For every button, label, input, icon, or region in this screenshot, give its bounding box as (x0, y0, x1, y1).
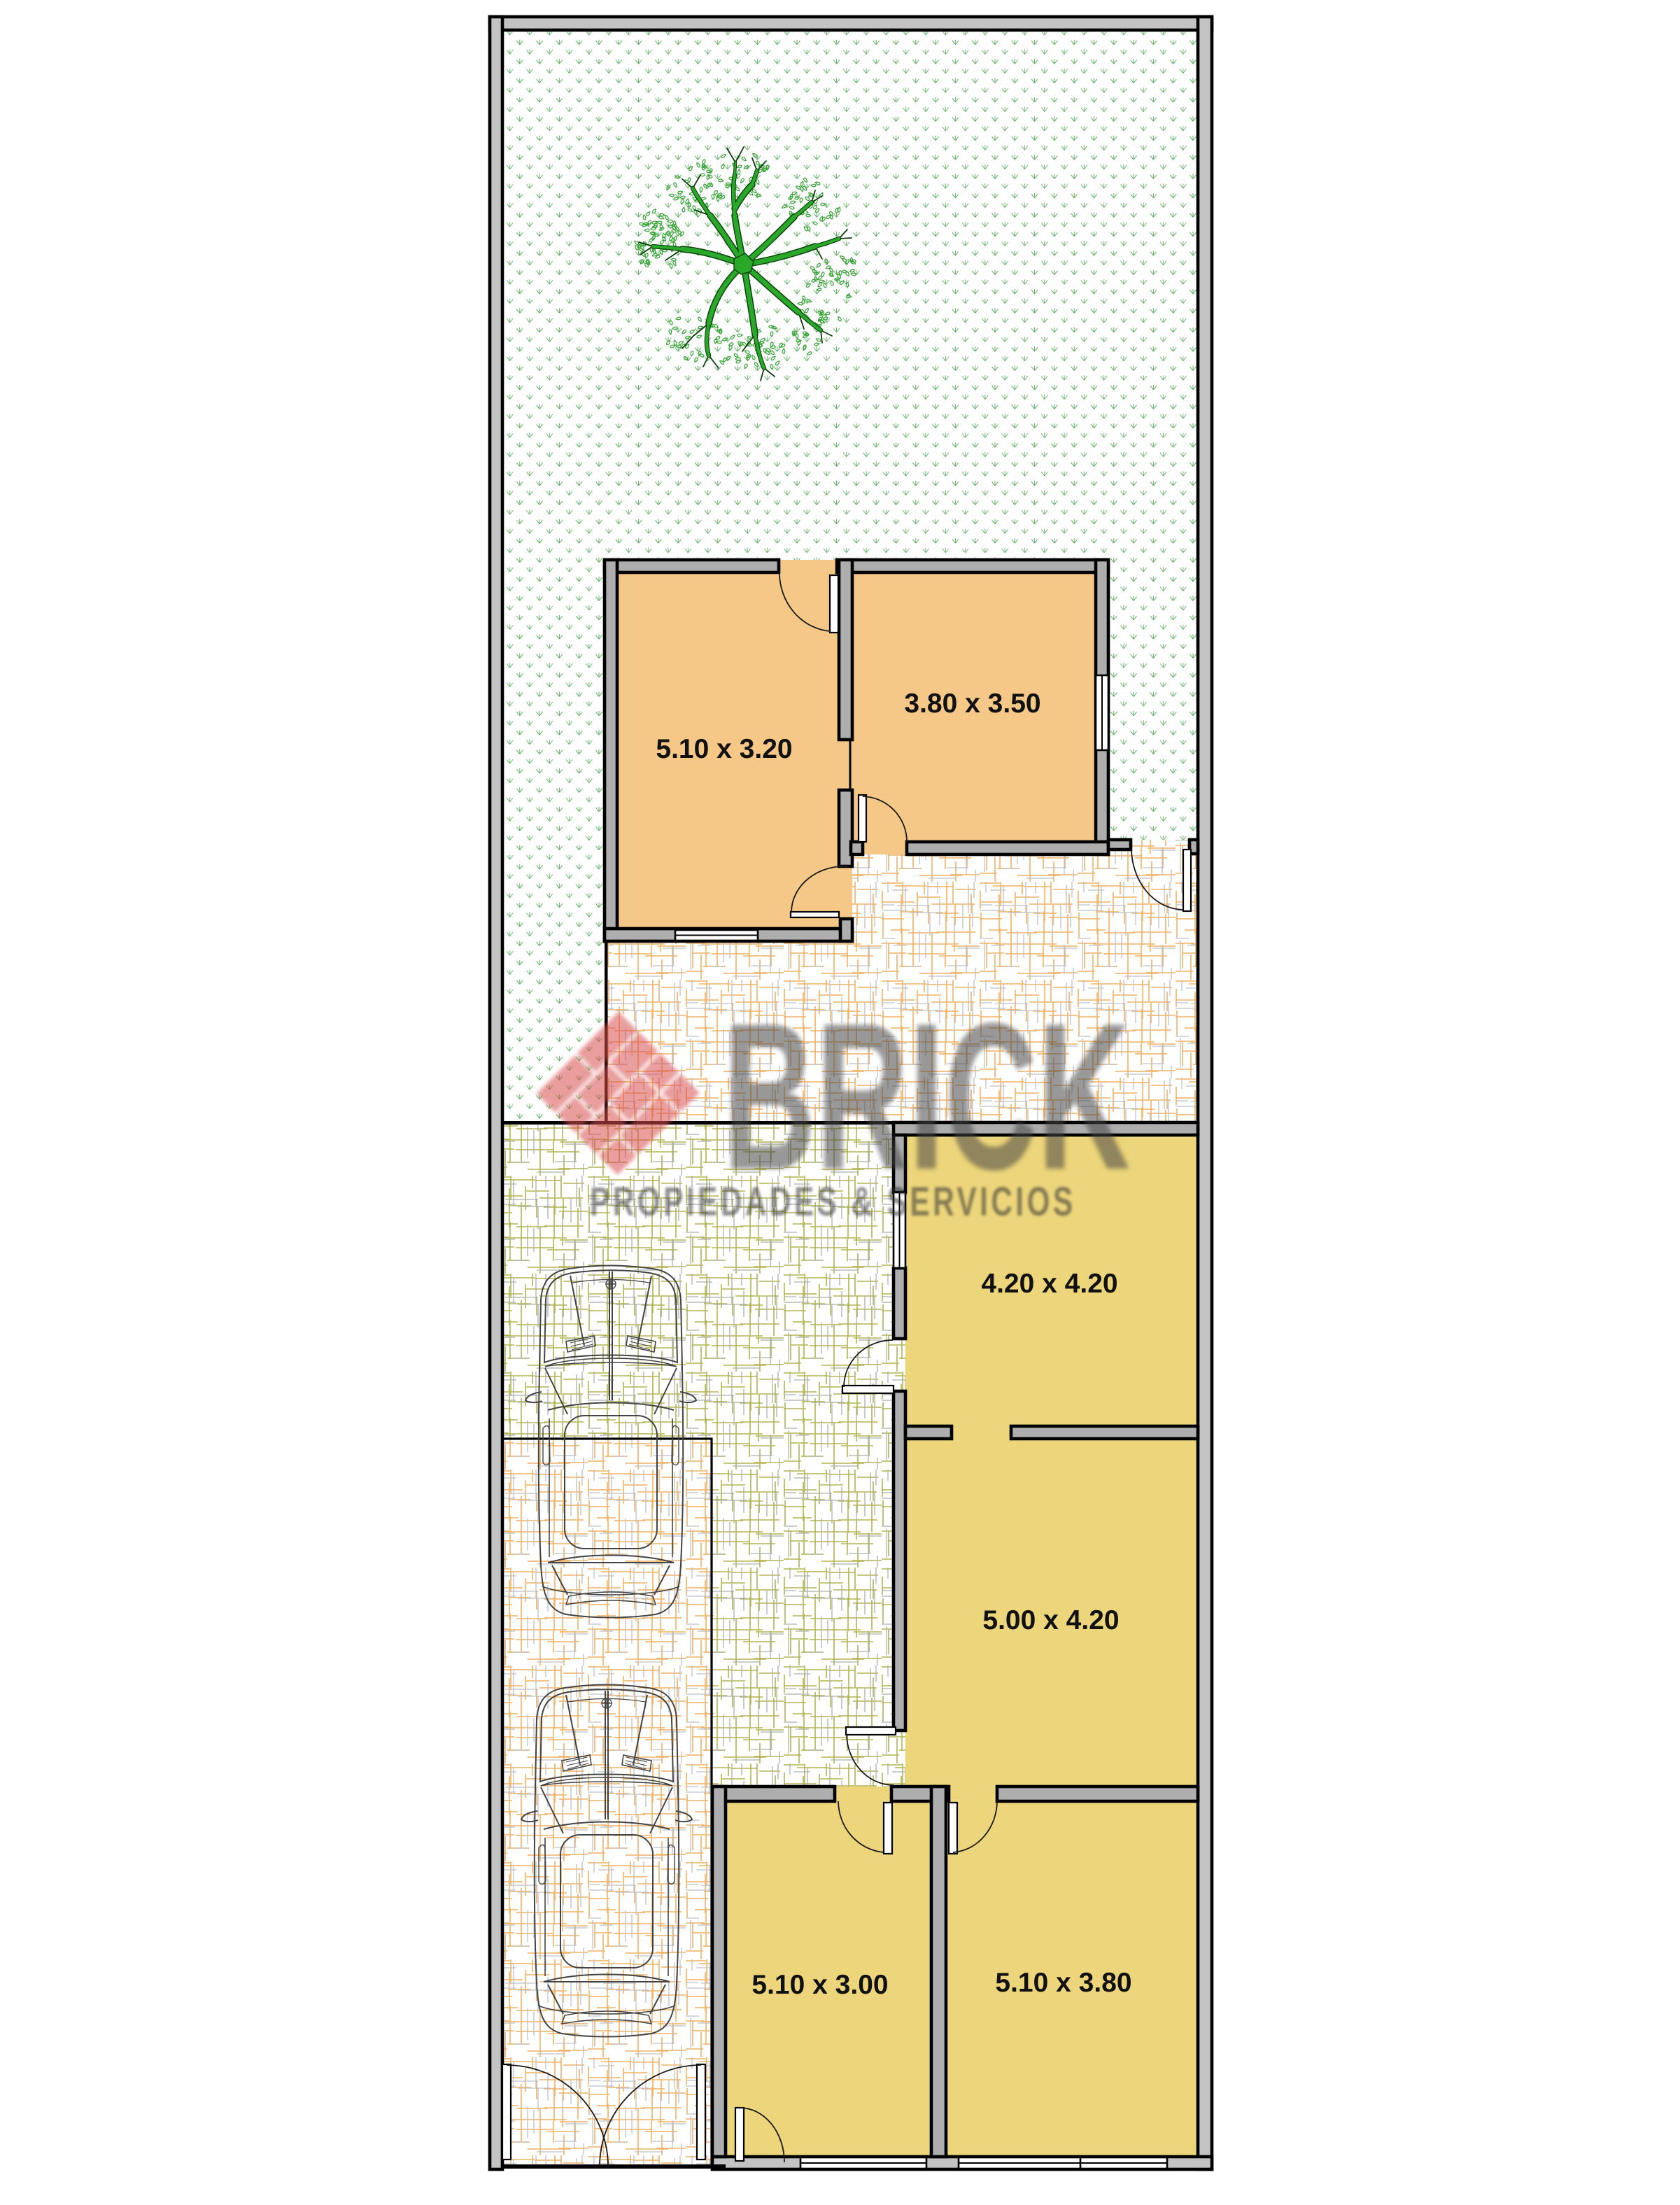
svg-text:5.10 x 3.20: 5.10 x 3.20 (656, 734, 792, 764)
svg-text:5.10 x 3.00: 5.10 x 3.00 (751, 1970, 888, 2000)
svg-text:4.20 x 4.20: 4.20 x 4.20 (981, 1269, 1117, 1299)
svg-text:PROPIEDADES & SERVICIOS: PROPIEDADES & SERVICIOS (590, 1179, 1076, 1225)
svg-text:5.00 x 4.20: 5.00 x 4.20 (982, 1605, 1119, 1635)
svg-text:5.10 x 3.80: 5.10 x 3.80 (995, 1968, 1131, 1998)
svg-text:3.80 x 3.50: 3.80 x 3.50 (904, 689, 1040, 719)
